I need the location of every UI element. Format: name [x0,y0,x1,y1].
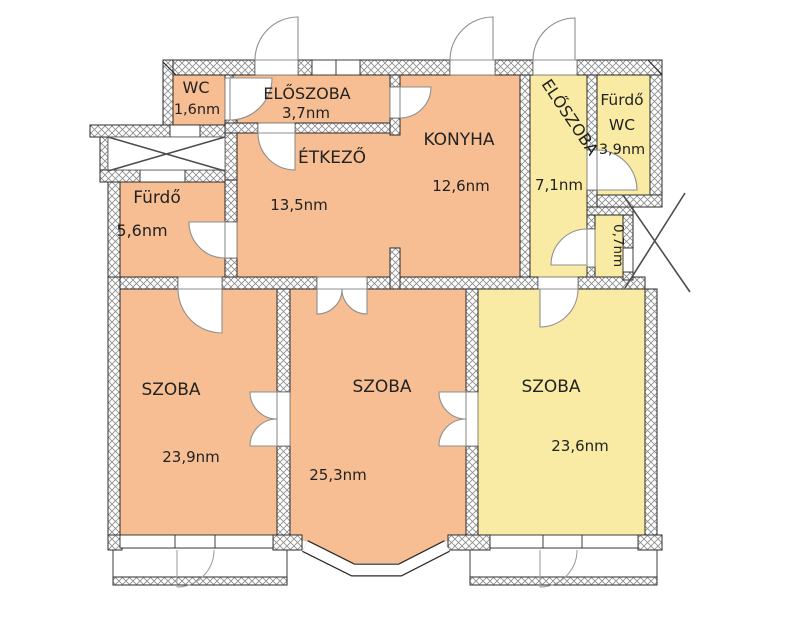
door-opening [178,277,222,289]
wall-segment [390,248,400,289]
door-opening [538,277,578,289]
door-opening [466,392,478,446]
wall-segment [277,446,290,535]
label-furdo-wc-area: 3,9nm [599,142,645,158]
door-opening [587,229,595,267]
label-etkezo-area: 13,5nm [270,196,328,214]
wall-segment [298,60,312,75]
room-konyha-opening [390,135,400,248]
wall-segment [638,535,662,550]
door-arc-entry-konyha [450,17,493,60]
door-opening [258,123,295,133]
room-szoba-right [478,289,645,535]
label-furdo-wc-2: WC [609,116,635,134]
label-szoba-right-area: 23,6nm [551,437,609,455]
door-opening [255,60,298,75]
label-wc-area: 1,6nm [174,102,220,118]
wall-segment [587,215,595,229]
wall-segment [390,118,400,135]
door-arc-entry-eloszoba-small [255,17,298,60]
door-opening [390,87,400,118]
label-szoba-middle-area: 25,3nm [309,466,367,484]
wall-segment [295,123,390,133]
floor-plan: WC 1,6nm ELŐSZOBA 3,7nm ÉTKEZŐ 13,5nm KO… [0,0,800,629]
label-konyha-area: 12,6nm [432,177,490,195]
window [120,535,273,548]
wall-segment [222,277,317,289]
wall-segment [495,60,533,75]
door-opening [225,222,237,258]
wall-segment [225,123,258,133]
door-opening [450,60,495,75]
label-eloszoba-main-area: 7,1nm [535,176,583,194]
wall-segment [590,195,662,207]
wall-segment [650,75,662,195]
label-eloszoba-small: ELŐSZOBA [263,83,350,103]
label-szoba-left: SZOBA [141,380,200,400]
window [490,535,638,548]
wall-segment [273,535,302,550]
wall-segment [90,125,235,137]
wall-segment [520,75,530,277]
wall-segment [587,190,597,207]
wall-segment [448,535,490,550]
wall-segment [390,75,400,87]
label-szoba-left-area: 23,9nm [162,448,220,466]
window [140,170,185,182]
wall-segment [645,289,657,535]
door-opening [317,277,367,289]
wall-segment [578,277,645,289]
label-szoba-middle: SZOBA [352,377,411,397]
door-opening [533,60,577,75]
wall-segment [225,180,237,222]
label-furdo: Fürdő [133,188,181,208]
label-konyha: KONYHA [423,130,494,150]
window [170,125,200,137]
wall-segment [587,267,595,277]
wall-segment [120,277,178,289]
wall-segment [225,258,237,277]
wall-segment [277,289,290,392]
wall-segment [577,60,662,75]
room-szoba-middle [290,289,466,535]
wall-segment [466,289,478,392]
wall-segment [360,60,450,75]
wall-segment [466,446,478,535]
label-etkezo: ÉTKEZŐ [298,146,366,168]
door-opening [277,392,290,446]
label-wc: WC [183,78,210,97]
door-arc-entry-eloszoba-main [533,18,575,60]
label-eloszoba-small-area: 3,7nm [282,104,330,122]
wall-segment [587,207,633,215]
balcony-left-parapet [113,577,287,585]
label-szoba-right: SZOBA [521,377,580,397]
light-shaft-left [108,137,225,171]
label-furdo-area: 5,6nm [116,221,167,240]
label-furdo-wc: Fürdő [600,91,643,109]
label-kamra-area: 0,7nm [610,224,626,267]
wall-segment [108,277,120,535]
floor-plan-canvas: WC 1,6nm ELŐSZOBA 3,7nm ÉTKEZŐ 13,5nm KO… [0,0,800,629]
wall-segment [163,60,255,75]
